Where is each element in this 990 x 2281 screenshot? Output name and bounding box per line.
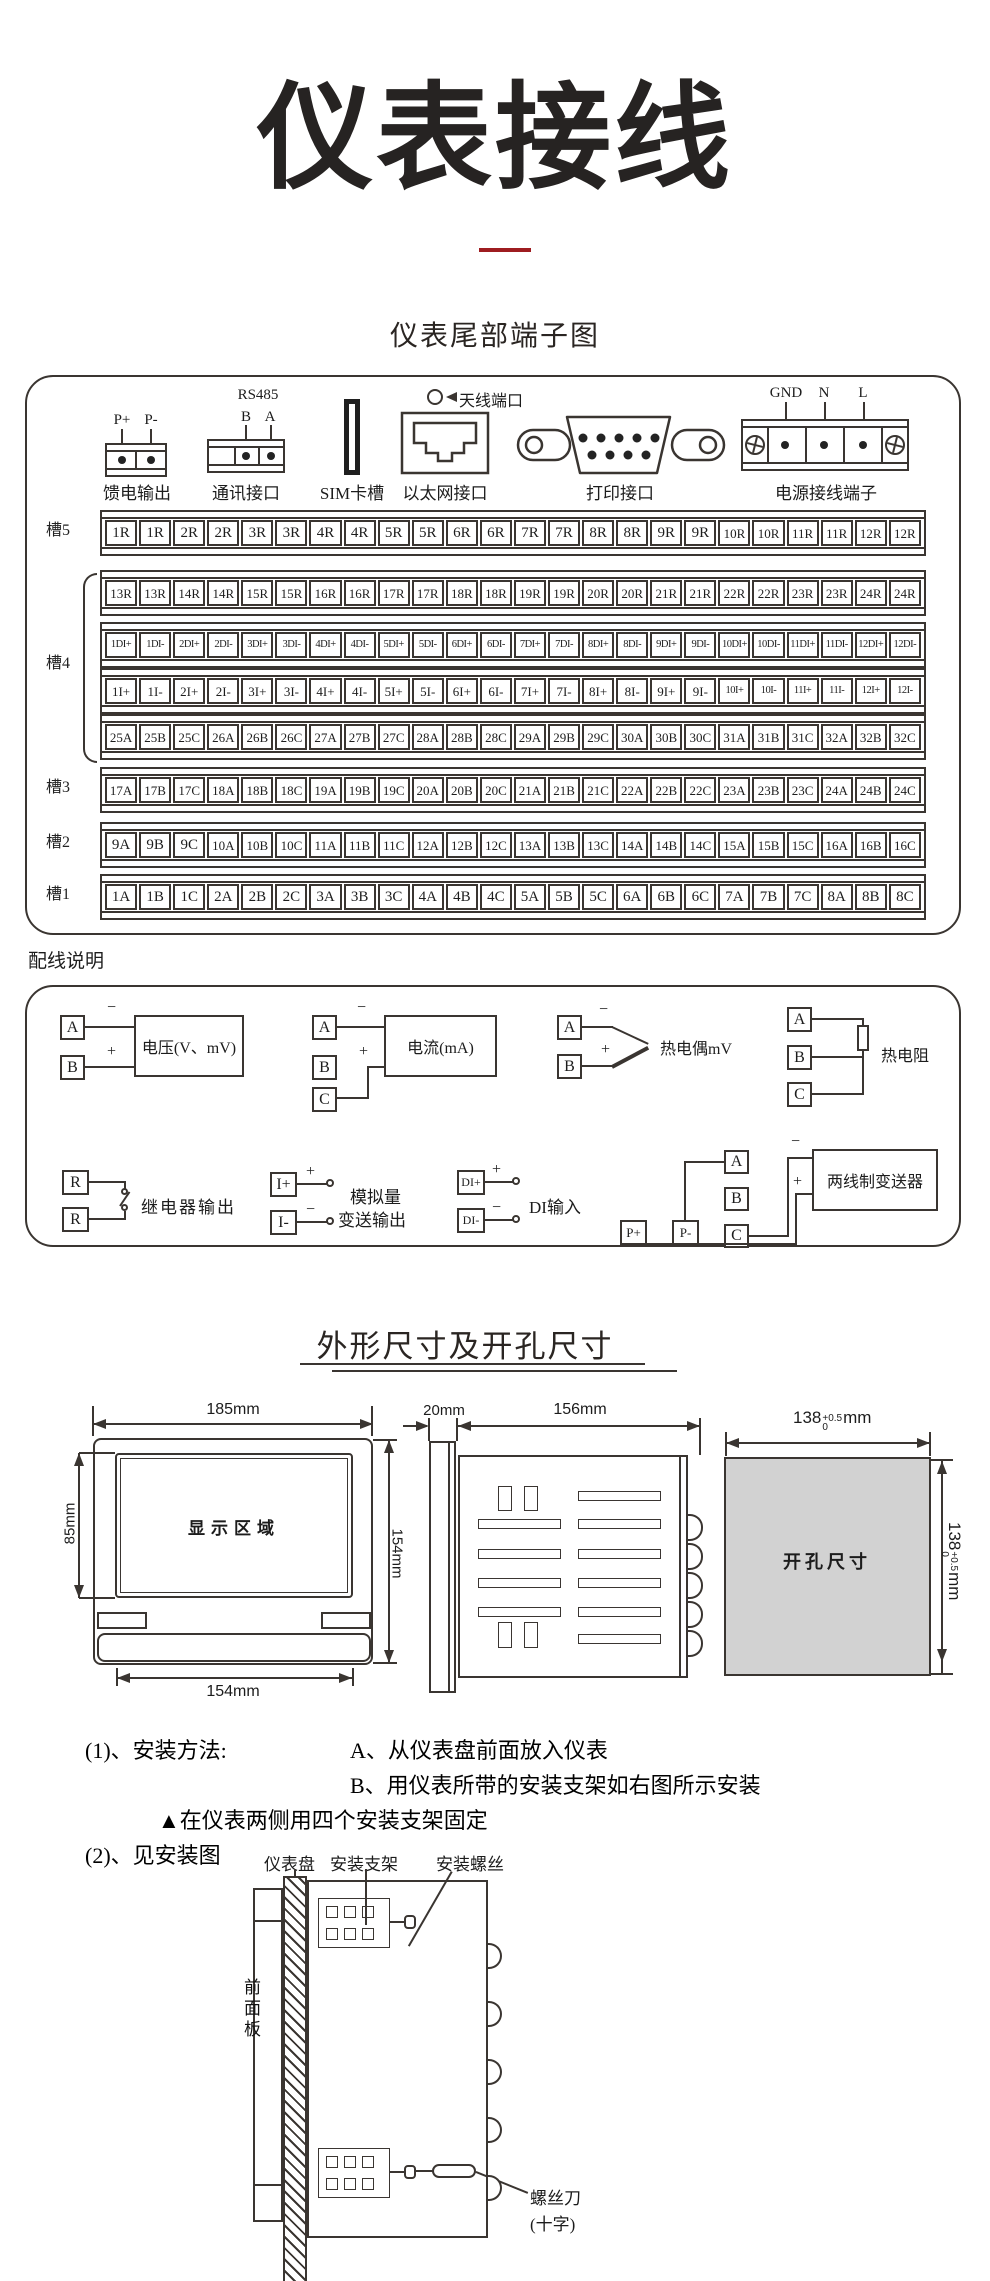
terminal-cell: 4A xyxy=(412,884,444,910)
front-bezel-side xyxy=(253,1888,283,2222)
terminal-cell: 10I+ xyxy=(718,678,750,704)
terminal-cell: 14B xyxy=(650,832,682,858)
mount-clip xyxy=(488,2117,502,2143)
terminal-cell: 12C xyxy=(480,832,512,858)
terminal-cell: 3DI+ xyxy=(241,632,273,658)
terminal-cell: 9DI+ xyxy=(650,632,682,658)
terminal-cell: 3A xyxy=(309,884,341,910)
dim-arrow xyxy=(74,1585,84,1598)
dim-arrow xyxy=(339,1673,352,1683)
antenna-port-icon xyxy=(427,389,443,405)
power-label: 电源接线端子 xyxy=(754,479,898,504)
wire-line xyxy=(684,1161,686,1220)
dimensions-heading: 外形尺寸及开孔尺寸 xyxy=(0,1321,930,1366)
wire-line xyxy=(367,1066,384,1068)
terminal-cell: 1I- xyxy=(139,678,171,704)
terminal-cell: 21C xyxy=(582,777,614,803)
terminal-dot xyxy=(781,441,789,449)
polarity-minus: − xyxy=(107,999,116,1017)
terminal-cell: 10R xyxy=(718,520,750,546)
bracket-hole xyxy=(362,2156,374,2168)
terminal-cell: 12I- xyxy=(889,678,921,704)
terminal-r2: R xyxy=(62,1207,89,1232)
terminal-cell: 7I+ xyxy=(514,678,546,704)
terminal-cell: 11B xyxy=(344,832,376,858)
callout-driver-label-2: (十字) xyxy=(530,2210,575,2235)
terminal-cell: 9C xyxy=(173,832,205,858)
front-foot xyxy=(321,1612,371,1629)
terminal-cell: 19B xyxy=(344,777,376,803)
terminal-cell: 17A xyxy=(105,777,137,803)
dim-height-left: 85mm xyxy=(62,1499,79,1549)
thermocouple-junction-line xyxy=(611,1046,649,1069)
terminal-cell: 7DI+ xyxy=(514,632,546,658)
vent-slot xyxy=(578,1634,661,1644)
mount-clip xyxy=(488,2001,502,2027)
bracket-hole xyxy=(326,2156,338,2168)
terminal-cells: 1R1R2R2R3R3R4R4R5R5R6R6R7R7R8R8R9R9R10R1… xyxy=(105,520,921,546)
feed-pin-minus-label: P- xyxy=(136,412,166,429)
terminal-cell: 6C xyxy=(684,884,716,910)
wire-line xyxy=(337,1026,384,1028)
terminal-cell: 32B xyxy=(855,724,887,750)
cell-divider xyxy=(767,428,769,462)
tol-top: +0.5 xyxy=(949,1551,958,1571)
terminal-cell: 5I- xyxy=(412,678,444,704)
dim-ext-line xyxy=(699,1418,701,1455)
terminal-cell: 8I+ xyxy=(582,678,614,704)
terminal-cell: 17R xyxy=(412,580,444,606)
terminal-dot xyxy=(820,441,828,449)
bracket-hole xyxy=(344,1906,356,1918)
dim-arrow xyxy=(937,1461,947,1474)
terminal-cell: 12I+ xyxy=(855,678,887,704)
terminal-cell: 21A xyxy=(514,777,546,803)
terminal-cell: 9DI- xyxy=(684,632,716,658)
rear-terminal-panel: P+ P- 馈电输出 RS485 B A 通讯接口 SIM卡槽 xyxy=(25,375,961,935)
terminal-cell: 23R xyxy=(821,580,853,606)
terminal-strip: 17A17B17C18A18B18C19A19B19C20A20B20C21A2… xyxy=(100,767,926,813)
polarity-plus: + xyxy=(306,1163,315,1181)
feed-lead-line xyxy=(121,429,123,444)
vent-square xyxy=(498,1486,512,1511)
terminal-cell: 7C xyxy=(787,884,819,910)
callout-screw-label: 安装螺丝 xyxy=(436,1850,504,1875)
vent-slot xyxy=(478,1549,561,1559)
terminal-cells: 1DI+1DI-2DI+2DI-3DI+3DI-4DI+4DI-5DI+5DI-… xyxy=(105,632,921,658)
comm-label: 通讯接口 xyxy=(207,479,285,504)
cell-divider xyxy=(135,452,137,468)
wire-line xyxy=(89,1181,126,1183)
terminal-pminus: P- xyxy=(672,1220,699,1245)
terminal-cell: 7A xyxy=(718,884,750,910)
terminal-cell: 18R xyxy=(480,580,512,606)
slot-group-bracket xyxy=(83,573,97,763)
vent-slot xyxy=(578,1549,661,1559)
terminal-cell: 19R xyxy=(548,580,580,606)
terminal-cell: 1B xyxy=(139,884,171,910)
terminal-cell: 3I+ xyxy=(241,678,273,704)
terminal-cell: 24C xyxy=(889,777,921,803)
terminal-cells: 17A17B17C18A18B18C19A19B19C20A20B20C21A2… xyxy=(105,777,921,803)
terminal-cell: 16B xyxy=(855,832,887,858)
bracket-hole xyxy=(344,1928,356,1940)
terminal-cell: 3I- xyxy=(275,678,307,704)
terminal-cell: 10I- xyxy=(752,678,784,704)
terminal-cell: 10DI+ xyxy=(718,632,750,658)
terminal-cell: 2I+ xyxy=(173,678,205,704)
sim-slot-icon xyxy=(344,399,360,475)
terminal-cell: 31C xyxy=(787,724,819,750)
terminal-cell: 26B xyxy=(241,724,273,750)
terminal-cell: 3DI- xyxy=(275,632,307,658)
wire-line xyxy=(812,1093,864,1095)
mount-flange-line xyxy=(679,1455,681,1678)
terminal-cell: 25A xyxy=(105,724,137,750)
terminal-cell: 3C xyxy=(378,884,410,910)
terminal-cell: 1R xyxy=(139,520,171,546)
dim-arrow xyxy=(917,1438,930,1448)
polarity-plus: + xyxy=(359,1043,368,1061)
dim-arrow xyxy=(117,1673,130,1683)
dim-ext-line xyxy=(428,1418,430,1441)
terminal-cell: 11A xyxy=(309,832,341,858)
callout-front-panel-label: 前面板 xyxy=(238,1978,263,2041)
terminal-cell: 11R xyxy=(787,520,819,546)
cell-divider xyxy=(805,428,807,462)
vent-slot xyxy=(578,1578,661,1588)
polarity-minus: − xyxy=(306,1201,315,1219)
red-divider xyxy=(479,248,531,252)
terminal-cell: 11C xyxy=(378,832,410,858)
terminal-cell: 1R xyxy=(105,520,137,546)
terminal-cell: 27B xyxy=(344,724,376,750)
power-pin-n-label: N xyxy=(816,385,832,402)
printer-label: 打印接口 xyxy=(578,479,662,504)
terminal-cell: 8R xyxy=(616,520,648,546)
terminal-di-minus: DI- xyxy=(457,1208,485,1233)
terminal-cell: 11DI+ xyxy=(787,632,819,658)
terminal-cell: 29B xyxy=(548,724,580,750)
tol-bottom: 0 xyxy=(940,1551,949,1571)
terminal-cell: 2B xyxy=(241,884,273,910)
terminal-cell: 16C xyxy=(889,832,921,858)
slot-label: 槽4 xyxy=(35,656,81,672)
terminal-cell: 8A xyxy=(821,884,853,910)
terminal-cell: 4DI+ xyxy=(309,632,341,658)
terminal-cell: 5DI- xyxy=(412,632,444,658)
front-foot xyxy=(97,1612,147,1629)
rear-terminal-heading: 仪表尾部端子图 xyxy=(0,314,990,354)
terminal-cell: 7B xyxy=(752,884,784,910)
slot-label: 槽3 xyxy=(35,780,81,796)
polarity-plus: + xyxy=(492,1161,501,1179)
terminal-cell: 22R xyxy=(718,580,750,606)
terminal-cell: 13A xyxy=(514,832,546,858)
bracket-hole xyxy=(326,1928,338,1940)
terminal-cell: 2R xyxy=(207,520,239,546)
terminal-cell: 26A xyxy=(207,724,239,750)
terminal-cell: 12B xyxy=(446,832,478,858)
terminal-cell: 1C xyxy=(173,884,205,910)
terminal-cell: 7I- xyxy=(548,678,580,704)
terminal-a: A xyxy=(312,1015,337,1040)
terminal-cell: 16R xyxy=(344,580,376,606)
bezel-section-line xyxy=(253,1920,283,1922)
terminal-cell: 4C xyxy=(480,884,512,910)
wire-line xyxy=(582,1065,613,1067)
terminal-cell: 4I+ xyxy=(309,678,341,704)
terminal-b: B xyxy=(60,1055,85,1080)
power-pin-l-label: L xyxy=(855,385,871,402)
terminal-pplus: P+ xyxy=(620,1220,647,1245)
open-terminal-icon xyxy=(512,1177,520,1185)
terminal-cell: 4B xyxy=(446,884,478,910)
dim-line xyxy=(726,1442,930,1444)
terminal-cell: 10B xyxy=(241,832,273,858)
callout-driver-label-1: 螺丝刀 xyxy=(530,2184,581,2209)
terminal-dot xyxy=(147,456,155,464)
feed-pin-plus-label: P+ xyxy=(107,412,137,429)
cutout-w-tolerance: +0.50 xyxy=(822,1414,842,1432)
terminal-cell: 15R xyxy=(241,580,273,606)
cutout-h-tolerance: +0.50 xyxy=(940,1551,958,1571)
screwdriver-handle xyxy=(432,2164,476,2178)
vent-slot xyxy=(578,1491,661,1501)
terminal-cell: 2DI+ xyxy=(173,632,205,658)
terminal-cell: 4R xyxy=(344,520,376,546)
install-note-text: ▲在仪表两侧用四个安装支架固定 xyxy=(158,1808,488,1834)
terminal-cell: 20B xyxy=(446,777,478,803)
power-lead-line xyxy=(863,402,865,420)
terminal-cell: 12R xyxy=(889,520,921,546)
cell-divider xyxy=(881,428,883,462)
power-pin-gnd-label: GND xyxy=(768,385,804,402)
terminal-cell: 12DI+ xyxy=(855,632,887,658)
terminal-cell: 8I- xyxy=(616,678,648,704)
vent-square xyxy=(498,1622,512,1648)
open-terminal-icon xyxy=(512,1215,520,1223)
terminal-cell: 2R xyxy=(173,520,205,546)
terminal-cell: 6A xyxy=(616,884,648,910)
screw-icon xyxy=(745,435,765,455)
terminal-cell: 20C xyxy=(480,777,512,803)
wire-line xyxy=(812,1018,864,1020)
tol-bottom: 0 xyxy=(822,1423,842,1432)
antenna-label: 天线端口 xyxy=(459,387,523,411)
open-terminal-icon xyxy=(326,1179,334,1187)
terminal-cell: 5R xyxy=(412,520,444,546)
bezel-section-line xyxy=(253,2184,283,2186)
dim-depth-body: 156mm xyxy=(548,1401,612,1419)
terminal-cell: 7DI- xyxy=(548,632,580,658)
resistor-icon xyxy=(857,1025,869,1051)
terminal-cell: 22A xyxy=(616,777,648,803)
dim-height-right: 154mm xyxy=(389,1526,406,1582)
terminal-cell: 6DI- xyxy=(480,632,512,658)
terminal-cell: 22C xyxy=(684,777,716,803)
vent-slot xyxy=(478,1578,561,1588)
terminal-di-plus: DI+ xyxy=(457,1170,485,1195)
screw-head xyxy=(404,1915,416,1929)
terminal-cell: 23R xyxy=(787,580,819,606)
terminal-strip: 1DI+1DI-2DI+2DI-3DI+3DI-4DI+4DI-5DI+5DI-… xyxy=(100,622,926,668)
mount-clip xyxy=(488,2175,502,2201)
dim-arrow xyxy=(726,1438,739,1448)
terminal-cell: 25B xyxy=(139,724,171,750)
terminal-cell: 2C xyxy=(275,884,307,910)
terminal-cell: 18B xyxy=(241,777,273,803)
terminal-iplus: I+ xyxy=(270,1172,297,1197)
feed-terminal-block xyxy=(105,443,167,477)
polarity-minus: − xyxy=(357,999,366,1017)
terminal-cell: 27A xyxy=(309,724,341,750)
terminal-cell: 5A xyxy=(514,884,546,910)
wire-line xyxy=(124,1211,126,1219)
terminal-cell: 22B xyxy=(650,777,682,803)
terminal-cell: 9I+ xyxy=(650,678,682,704)
analog-out-label-1: 模拟量 xyxy=(350,1183,401,1208)
relay-contact-icon xyxy=(121,1204,128,1211)
mount-clip xyxy=(488,1943,502,1969)
terminal-cell: 28C xyxy=(480,724,512,750)
terminal-dot xyxy=(118,456,126,464)
cutout-h-value: 138 xyxy=(945,1522,964,1550)
bracket-hole xyxy=(344,2178,356,2190)
terminal-cell: 31B xyxy=(752,724,784,750)
terminal-cell: 6B xyxy=(650,884,682,910)
terminal-cell: 24R xyxy=(855,580,887,606)
terminal-cell: 6R xyxy=(480,520,512,546)
wire-line xyxy=(633,1243,797,1245)
wire-line xyxy=(787,1157,812,1159)
terminal-cell: 11R xyxy=(821,520,853,546)
terminal-cell: 13C xyxy=(582,832,614,858)
terminal-cell: 26C xyxy=(275,724,307,750)
terminal-cell: 11I- xyxy=(821,678,853,704)
bracket-hole xyxy=(362,1906,374,1918)
bracket-hole xyxy=(362,1928,374,1940)
wire-line xyxy=(485,1181,513,1183)
heading-underline xyxy=(300,1363,645,1365)
dim-arrow xyxy=(360,1419,373,1429)
terminal-cell: 30B xyxy=(650,724,682,750)
terminal-cell: 11I+ xyxy=(787,678,819,704)
dim-arrow xyxy=(937,1649,947,1662)
terminal-cell: 9I- xyxy=(684,678,716,704)
terminal-cell: 17B xyxy=(139,777,171,803)
terminal-cell: 1DI+ xyxy=(105,632,137,658)
terminal-cell: 9R xyxy=(650,520,682,546)
wire-line xyxy=(85,1026,134,1028)
terminal-cell: 13B xyxy=(548,832,580,858)
terminal-r1: R xyxy=(62,1170,89,1195)
install-step1-text: A、从仪表盘前面放入仪表 xyxy=(350,1738,608,1764)
wire-line xyxy=(89,1218,126,1220)
dim-cutout-width: 138+0.50mm xyxy=(793,1408,871,1432)
terminal-cell: 2A xyxy=(207,884,239,910)
terminal-strip: 1I+1I-2I+2I-3I+3I-4I+4I-5I+5I-6I+6I-7I+7… xyxy=(100,668,926,714)
callout-panel-label: 仪表盘 xyxy=(264,1850,315,1875)
install-step1-label: (1)、安装方法: xyxy=(85,1738,227,1764)
terminal-cell: 15C xyxy=(787,832,819,858)
terminal-b: B xyxy=(787,1045,812,1070)
page-title: 仪表接线 xyxy=(0,44,990,212)
feed-label: 馈电输出 xyxy=(99,479,175,504)
terminal-cell: 21B xyxy=(548,777,580,803)
cutout-w-value: 138 xyxy=(793,1408,821,1427)
power-terminal-block xyxy=(741,419,909,471)
cutout-label: 开孔尺寸 xyxy=(752,1548,902,1574)
terminal-cell: 19C xyxy=(378,777,410,803)
terminal-cell: 15B xyxy=(752,832,784,858)
terminal-cell: 3R xyxy=(241,520,273,546)
bracket-hole xyxy=(326,2178,338,2190)
wire-line xyxy=(795,1193,797,1244)
terminal-cell: 5C xyxy=(582,884,614,910)
dim-ext-line xyxy=(79,1597,115,1599)
thermocouple-junction-line xyxy=(612,1026,649,1045)
terminal-cell: 24A xyxy=(821,777,853,803)
dim-ext-line xyxy=(352,1668,354,1686)
callout-bracket-label: 安装支架 xyxy=(330,1850,398,1875)
terminal-cell: 13R xyxy=(139,580,171,606)
terminal-dot xyxy=(859,441,867,449)
ethernet-port-icon xyxy=(400,411,490,475)
vent-slot xyxy=(578,1519,661,1529)
dim-depth-bezel: 20mm xyxy=(420,1402,468,1419)
terminal-cell: 24B xyxy=(855,777,887,803)
terminal-cell: 28B xyxy=(446,724,478,750)
polarity-minus: − xyxy=(791,1133,800,1151)
side-bezel xyxy=(429,1441,456,1693)
slot-label: 槽1 xyxy=(35,887,81,903)
terminal-cell: 10C xyxy=(275,832,307,858)
dim-arrow xyxy=(384,1440,394,1453)
terminal-cell: 18R xyxy=(446,580,478,606)
comm-bus-label: RS485 xyxy=(230,387,286,404)
transmitter-device-box: 两线制变送器 xyxy=(812,1149,938,1211)
wire-line xyxy=(684,1161,724,1163)
terminal-cell: 27C xyxy=(378,724,410,750)
screw-icon xyxy=(885,435,905,455)
terminal-cell: 1DI- xyxy=(139,632,171,658)
terminal-cell: 12A xyxy=(412,832,444,858)
cell-divider xyxy=(234,448,236,464)
antenna-arrow-icon xyxy=(446,392,457,402)
terminal-cell: 23C xyxy=(787,777,819,803)
dim-line xyxy=(117,1677,352,1679)
terminal-strip: 1R1R2R2R3R3R4R4R5R5R6R6R7R7R8R8R9R9R10R1… xyxy=(100,510,926,556)
terminal-cell: 20R xyxy=(616,580,648,606)
bracket-hole xyxy=(326,1906,338,1918)
terminal-cell: 3R xyxy=(275,520,307,546)
terminal-cell: 10A xyxy=(207,832,239,858)
power-lead-line xyxy=(785,402,787,420)
bracket-hole xyxy=(344,2156,356,2168)
terminal-cell: 32C xyxy=(889,724,921,750)
slot-label: 槽5 xyxy=(35,523,81,539)
terminal-a: A xyxy=(60,1015,85,1040)
polarity-minus: − xyxy=(492,1199,501,1217)
terminal-cell: 23A xyxy=(718,777,750,803)
terminal-cell: 3B xyxy=(344,884,376,910)
polarity-plus: + xyxy=(601,1041,610,1059)
display-area-label: 显示区域 xyxy=(164,1514,304,1539)
power-lead-line xyxy=(824,402,826,420)
terminal-cell: 6I- xyxy=(480,678,512,704)
wire-line xyxy=(337,1097,367,1099)
